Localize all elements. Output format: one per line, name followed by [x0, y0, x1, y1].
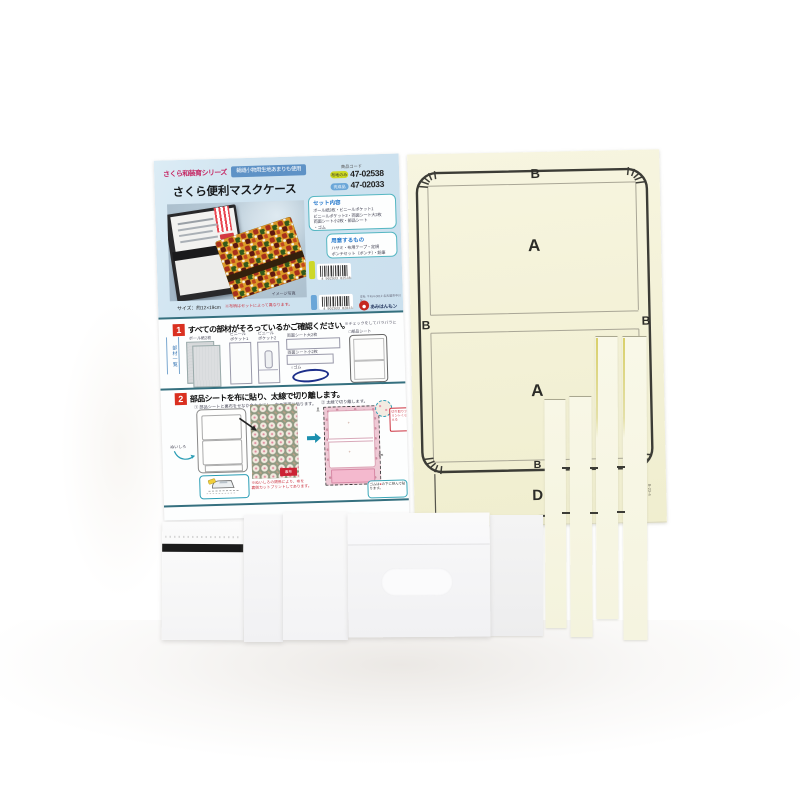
svg-text:B: B: [642, 314, 651, 328]
svg-text:B-23-4: B-23-4: [647, 484, 652, 497]
svg-text:A: A: [531, 381, 544, 400]
svg-text:D: D: [532, 487, 543, 504]
svg-text:B: B: [422, 318, 431, 332]
svg-text:A: A: [528, 236, 541, 255]
svg-text:B: B: [534, 459, 542, 471]
svg-text:B: B: [530, 166, 540, 181]
